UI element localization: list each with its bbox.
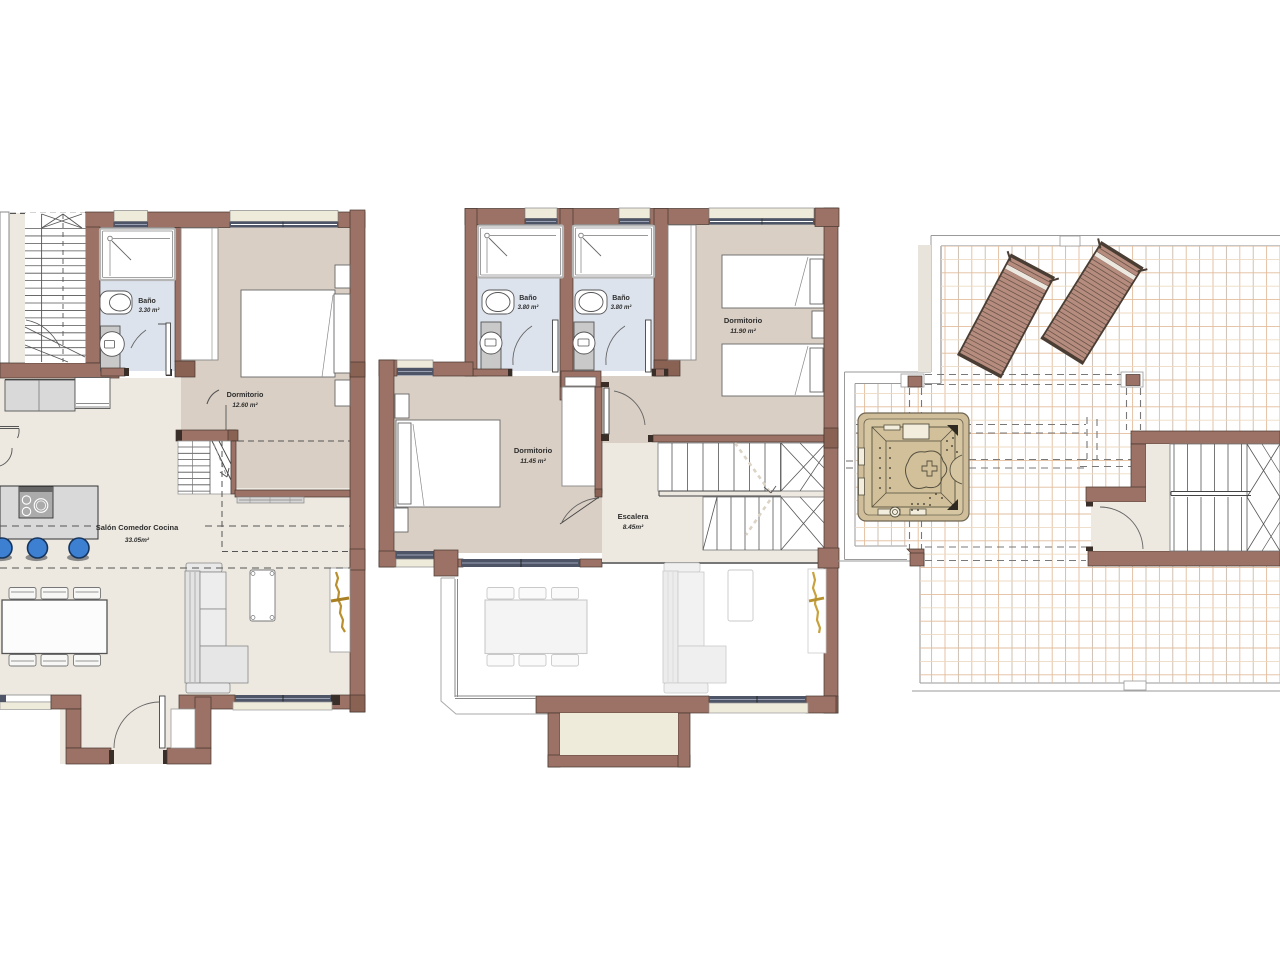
svg-text:Dormitorio: Dormitorio: [514, 446, 553, 455]
svg-text:Dormitorio: Dormitorio: [724, 316, 763, 325]
svg-text:3.80 m²: 3.80 m²: [611, 304, 633, 311]
svg-text:3.80 m²: 3.80 m²: [518, 304, 540, 311]
svg-text:11.45 m²: 11.45 m²: [520, 458, 546, 465]
svg-text:3.30 m²: 3.30 m²: [139, 307, 161, 314]
svg-text:Baño: Baño: [519, 295, 537, 302]
svg-text:Salón Comedor Cocina: Salón Comedor Cocina: [96, 523, 179, 532]
svg-text:8.45m²: 8.45m²: [623, 524, 644, 531]
svg-text:Escalera: Escalera: [618, 512, 650, 521]
svg-text:33.05m²: 33.05m²: [125, 537, 150, 544]
svg-text:11.90 m²: 11.90 m²: [730, 328, 756, 335]
svg-text:12.60 m²: 12.60 m²: [232, 402, 258, 409]
svg-text:Baño: Baño: [612, 295, 630, 302]
svg-text:Baño: Baño: [138, 298, 156, 305]
svg-text:Dormitorio: Dormitorio: [227, 390, 264, 399]
